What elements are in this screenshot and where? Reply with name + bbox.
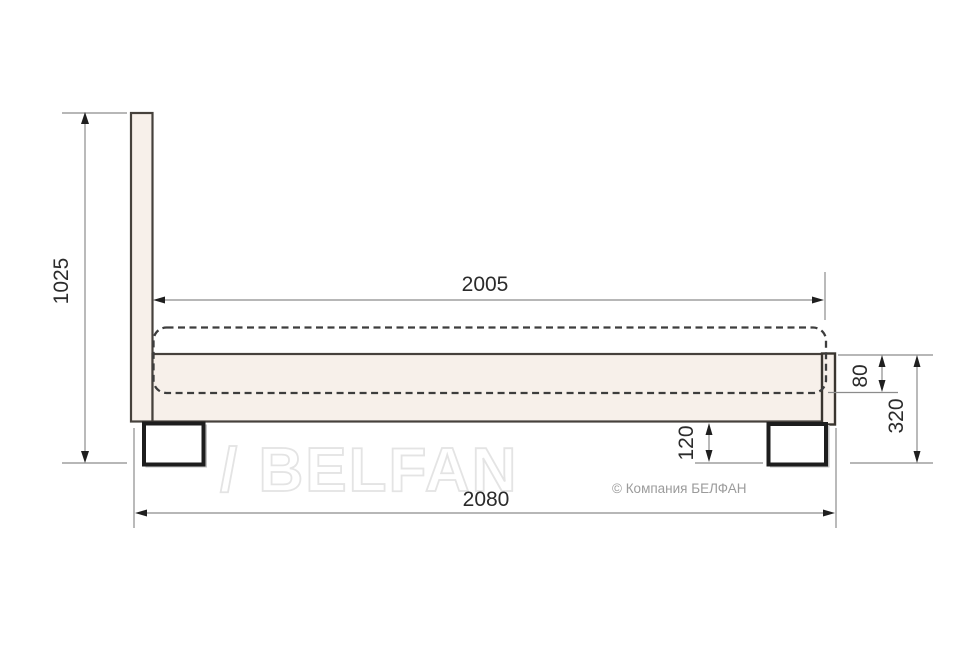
right-leg-group — [769, 424, 829, 467]
headboard-panel — [131, 113, 153, 422]
arrowhead-left-icon — [153, 297, 165, 304]
dimension-label-mattress-length: 2005 — [462, 273, 509, 296]
arrowhead-left-icon — [135, 510, 147, 517]
left-leg-group — [144, 424, 206, 467]
arrowhead-down-icon — [706, 450, 713, 462]
copyright-text: © Компания БЕЛФАН — [612, 481, 747, 496]
arrowhead-down-icon — [914, 451, 921, 463]
arrowhead-down-icon — [81, 451, 89, 463]
dimension-total-height: 1025 — [50, 112, 127, 463]
arrowhead-right-icon — [823, 510, 835, 517]
dimension-leg-height: 120 — [675, 423, 763, 463]
dimension-label-total-height: 1025 — [50, 258, 73, 305]
bed-base-panel — [153, 354, 823, 422]
dimension-mattress-length: 2005 — [153, 272, 825, 320]
dimension-label-overall-length: 2080 — [463, 488, 510, 511]
arrowhead-up-icon — [81, 112, 89, 124]
arrowhead-up-icon — [914, 355, 921, 367]
dimension-label-base-height: 320 — [885, 398, 908, 433]
arrowhead-down-icon — [879, 380, 886, 392]
dimension-label-leg-height: 120 — [675, 425, 698, 460]
arrowhead-right-icon — [812, 297, 824, 304]
drawing-canvas: / BELFAN 1025 — [0, 0, 961, 648]
footboard-end-cap — [822, 354, 835, 425]
arrowhead-up-icon — [706, 423, 713, 435]
bed-technical-drawing: / BELFAN 1025 — [0, 0, 961, 648]
arrowhead-up-icon — [879, 355, 886, 367]
dimension-label-rail-height: 80 — [849, 364, 872, 387]
right-leg — [769, 424, 827, 465]
left-leg — [144, 424, 204, 465]
